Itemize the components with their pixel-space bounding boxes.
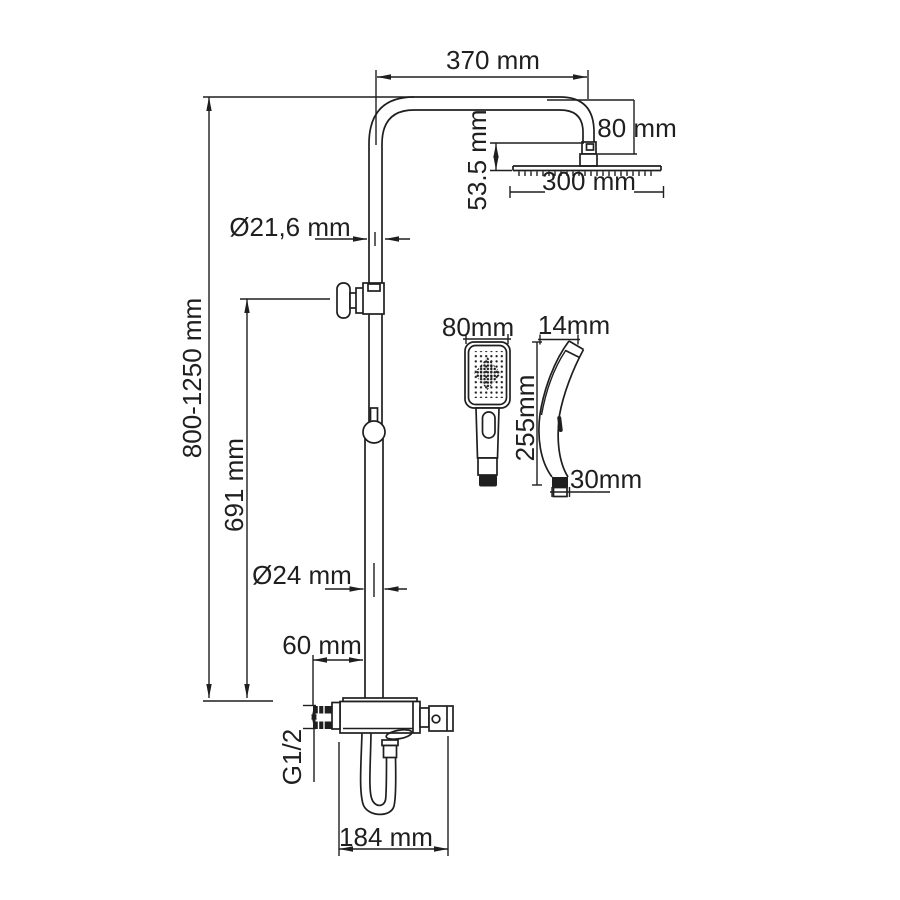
- mode-button: [483, 412, 496, 438]
- dim-label-slide-height: 691 mm: [219, 438, 249, 532]
- dim-label-handshower-base: 30mm: [570, 464, 642, 494]
- dim-label-arm-drop: 80 mm: [597, 113, 676, 143]
- dimension-pipe-21-6: Ø21,6 mm: [229, 212, 410, 246]
- thermostat-valve: [313, 698, 453, 758]
- dimension-height-range: 800-1250 mm: [177, 97, 273, 701]
- dim-label-upper-pipe: Ø21,6 mm: [229, 212, 350, 242]
- technical-drawing-canvas: 370 mm 80 mm 53.5 mm 300 mm Ø21,6 mm 800…: [0, 0, 900, 900]
- hand-shower-front-view: [465, 342, 510, 487]
- dim-label-lower-pipe: Ø24 mm: [252, 560, 352, 590]
- shower-dimension-diagram: 370 mm 80 mm 53.5 mm 300 mm Ø21,6 mm 800…: [0, 0, 900, 900]
- dim-label-handshower-tip: 14mm: [538, 310, 610, 340]
- dim-label-head-offset: 53.5 mm: [462, 109, 492, 210]
- dimension-handshower-255mm: 255mm: [510, 342, 542, 485]
- dimension-g12-thread: G1/2: [277, 706, 316, 786]
- dim-label-height-range: 800-1250 mm: [177, 298, 207, 458]
- dimension-80mm-drop: 80 mm: [547, 100, 677, 154]
- dim-label-head-width: 300 mm: [542, 166, 636, 196]
- dim-label-handshower-length: 255mm: [510, 375, 540, 462]
- dim-label-inlet-thread: G1/2: [277, 729, 307, 785]
- dim-label-valve-offset: 60 mm: [282, 630, 361, 660]
- wall-bracket: [337, 283, 384, 318]
- dimension-370mm: 370 mm: [203, 45, 588, 145]
- dim-label-arm-reach: 370 mm: [446, 45, 540, 75]
- dimension-60mm: 60 mm: [282, 630, 363, 706]
- inlet-nipple-top: [313, 706, 332, 714]
- dimension-handshower-14mm: 14mm: [538, 310, 610, 345]
- dim-label-handshower-width: 80mm: [442, 312, 514, 342]
- dim-label-valve-width: 184 mm: [339, 822, 433, 852]
- dimension-handshower-80mm: 80mm: [442, 312, 514, 344]
